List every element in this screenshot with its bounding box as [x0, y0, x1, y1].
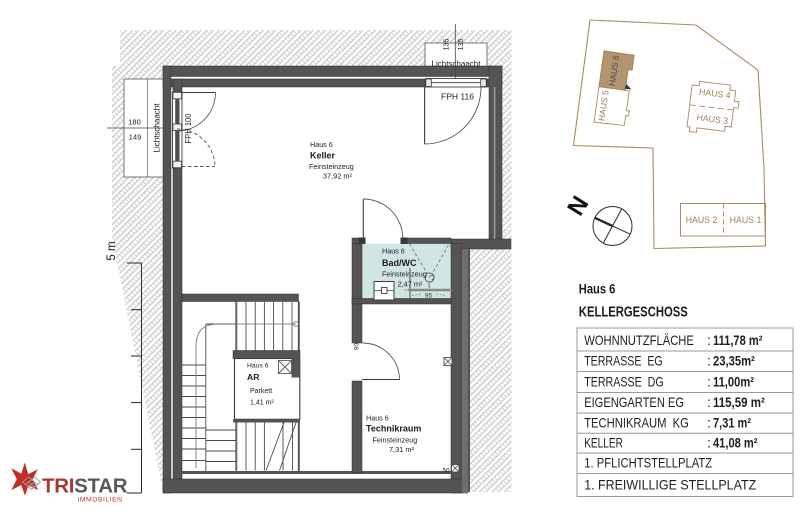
- svg-text:TERRASSE EG: TERRASSE EG: [584, 353, 663, 369]
- svg-text:Lichtschaacht: Lichtschaacht: [432, 59, 482, 69]
- svg-text:Bad/WC: Bad/WC: [382, 258, 417, 268]
- svg-text::: :: [707, 394, 711, 410]
- svg-text:Lichtschaacht: Lichtschaacht: [152, 103, 162, 153]
- svg-text:TRISTAR: TRISTAR: [42, 475, 128, 498]
- svg-text:HAUS 2: HAUS 2: [686, 215, 718, 225]
- svg-text::: :: [707, 332, 711, 348]
- svg-text:111,78 m²: 111,78 m²: [713, 332, 763, 348]
- svg-text:Haus 6: Haus 6: [366, 414, 389, 423]
- svg-text::: :: [707, 373, 711, 389]
- svg-text:KELLERGESCHOSS: KELLERGESCHOSS: [579, 304, 688, 321]
- svg-text:180: 180: [128, 118, 141, 127]
- svg-text:HAUS 1: HAUS 1: [730, 215, 762, 225]
- svg-text:115,59 m²: 115,59 m²: [713, 394, 765, 410]
- svg-text:Haus 6: Haus 6: [310, 140, 333, 149]
- svg-text:Haus 6: Haus 6: [579, 282, 616, 297]
- svg-text:149: 149: [129, 133, 142, 142]
- svg-text::: :: [707, 434, 711, 450]
- svg-text:23,35m²: 23,35m²: [713, 353, 755, 369]
- svg-text:EIGENGARTEN EG: EIGENGARTEN EG: [584, 394, 684, 410]
- svg-text:Parkett: Parkett: [250, 388, 272, 395]
- svg-text:Feinsteinzeug: Feinsteinzeug: [309, 162, 354, 171]
- svg-text:FPH 116: FPH 116: [441, 93, 474, 102]
- svg-text:IMMOBILIEN: IMMOBILIEN: [78, 497, 123, 504]
- svg-text:41,08 m²: 41,08 m²: [713, 434, 758, 450]
- svg-text:KELLER: KELLER: [584, 434, 623, 450]
- svg-text:37,92 m²: 37,92 m²: [323, 172, 353, 181]
- svg-text::: :: [707, 414, 711, 430]
- svg-text:Haus 6: Haus 6: [247, 363, 269, 370]
- svg-text:7,31 m²: 7,31 m²: [713, 414, 751, 430]
- svg-text:Technikraum: Technikraum: [366, 424, 421, 434]
- svg-text:1. FREIWILLIGE STELLPLATZ: 1. FREIWILLIGE STELLPLATZ: [584, 477, 756, 493]
- svg-text:Feinsteinzeug: Feinsteinzeug: [373, 436, 418, 445]
- svg-text:5 m: 5 m: [106, 241, 118, 260]
- svg-text:135: 135: [444, 39, 451, 51]
- svg-text:AR: AR: [247, 372, 260, 382]
- svg-text:WOHNNUTZFLÄCHE: WOHNNUTZFLÄCHE: [584, 332, 694, 348]
- svg-text:7,31 m²: 7,31 m²: [389, 445, 415, 454]
- svg-text:1. PFLICHTSTELLPLATZ: 1. PFLICHTSTELLPLATZ: [584, 455, 712, 471]
- svg-text:FPH 100: FPH 100: [184, 113, 193, 143]
- svg-text:90: 90: [354, 343, 361, 350]
- svg-text:11,00m²: 11,00m²: [713, 373, 754, 389]
- svg-text:TERRASSE DG: TERRASSE DG: [584, 373, 664, 389]
- svg-text:135: 135: [458, 39, 465, 51]
- svg-text:Keller: Keller: [310, 151, 336, 161]
- svg-text:TECHNIKRAUM KG: TECHNIKRAUM KG: [584, 414, 689, 430]
- svg-text:95: 95: [425, 293, 432, 300]
- svg-text:Feinsteinzeug: Feinsteinzeug: [382, 270, 427, 279]
- svg-text:50: 50: [442, 468, 450, 475]
- svg-text:Haus 6: Haus 6: [382, 247, 405, 256]
- svg-text::: :: [707, 353, 711, 369]
- svg-text:1,41 m²: 1,41 m²: [250, 400, 274, 407]
